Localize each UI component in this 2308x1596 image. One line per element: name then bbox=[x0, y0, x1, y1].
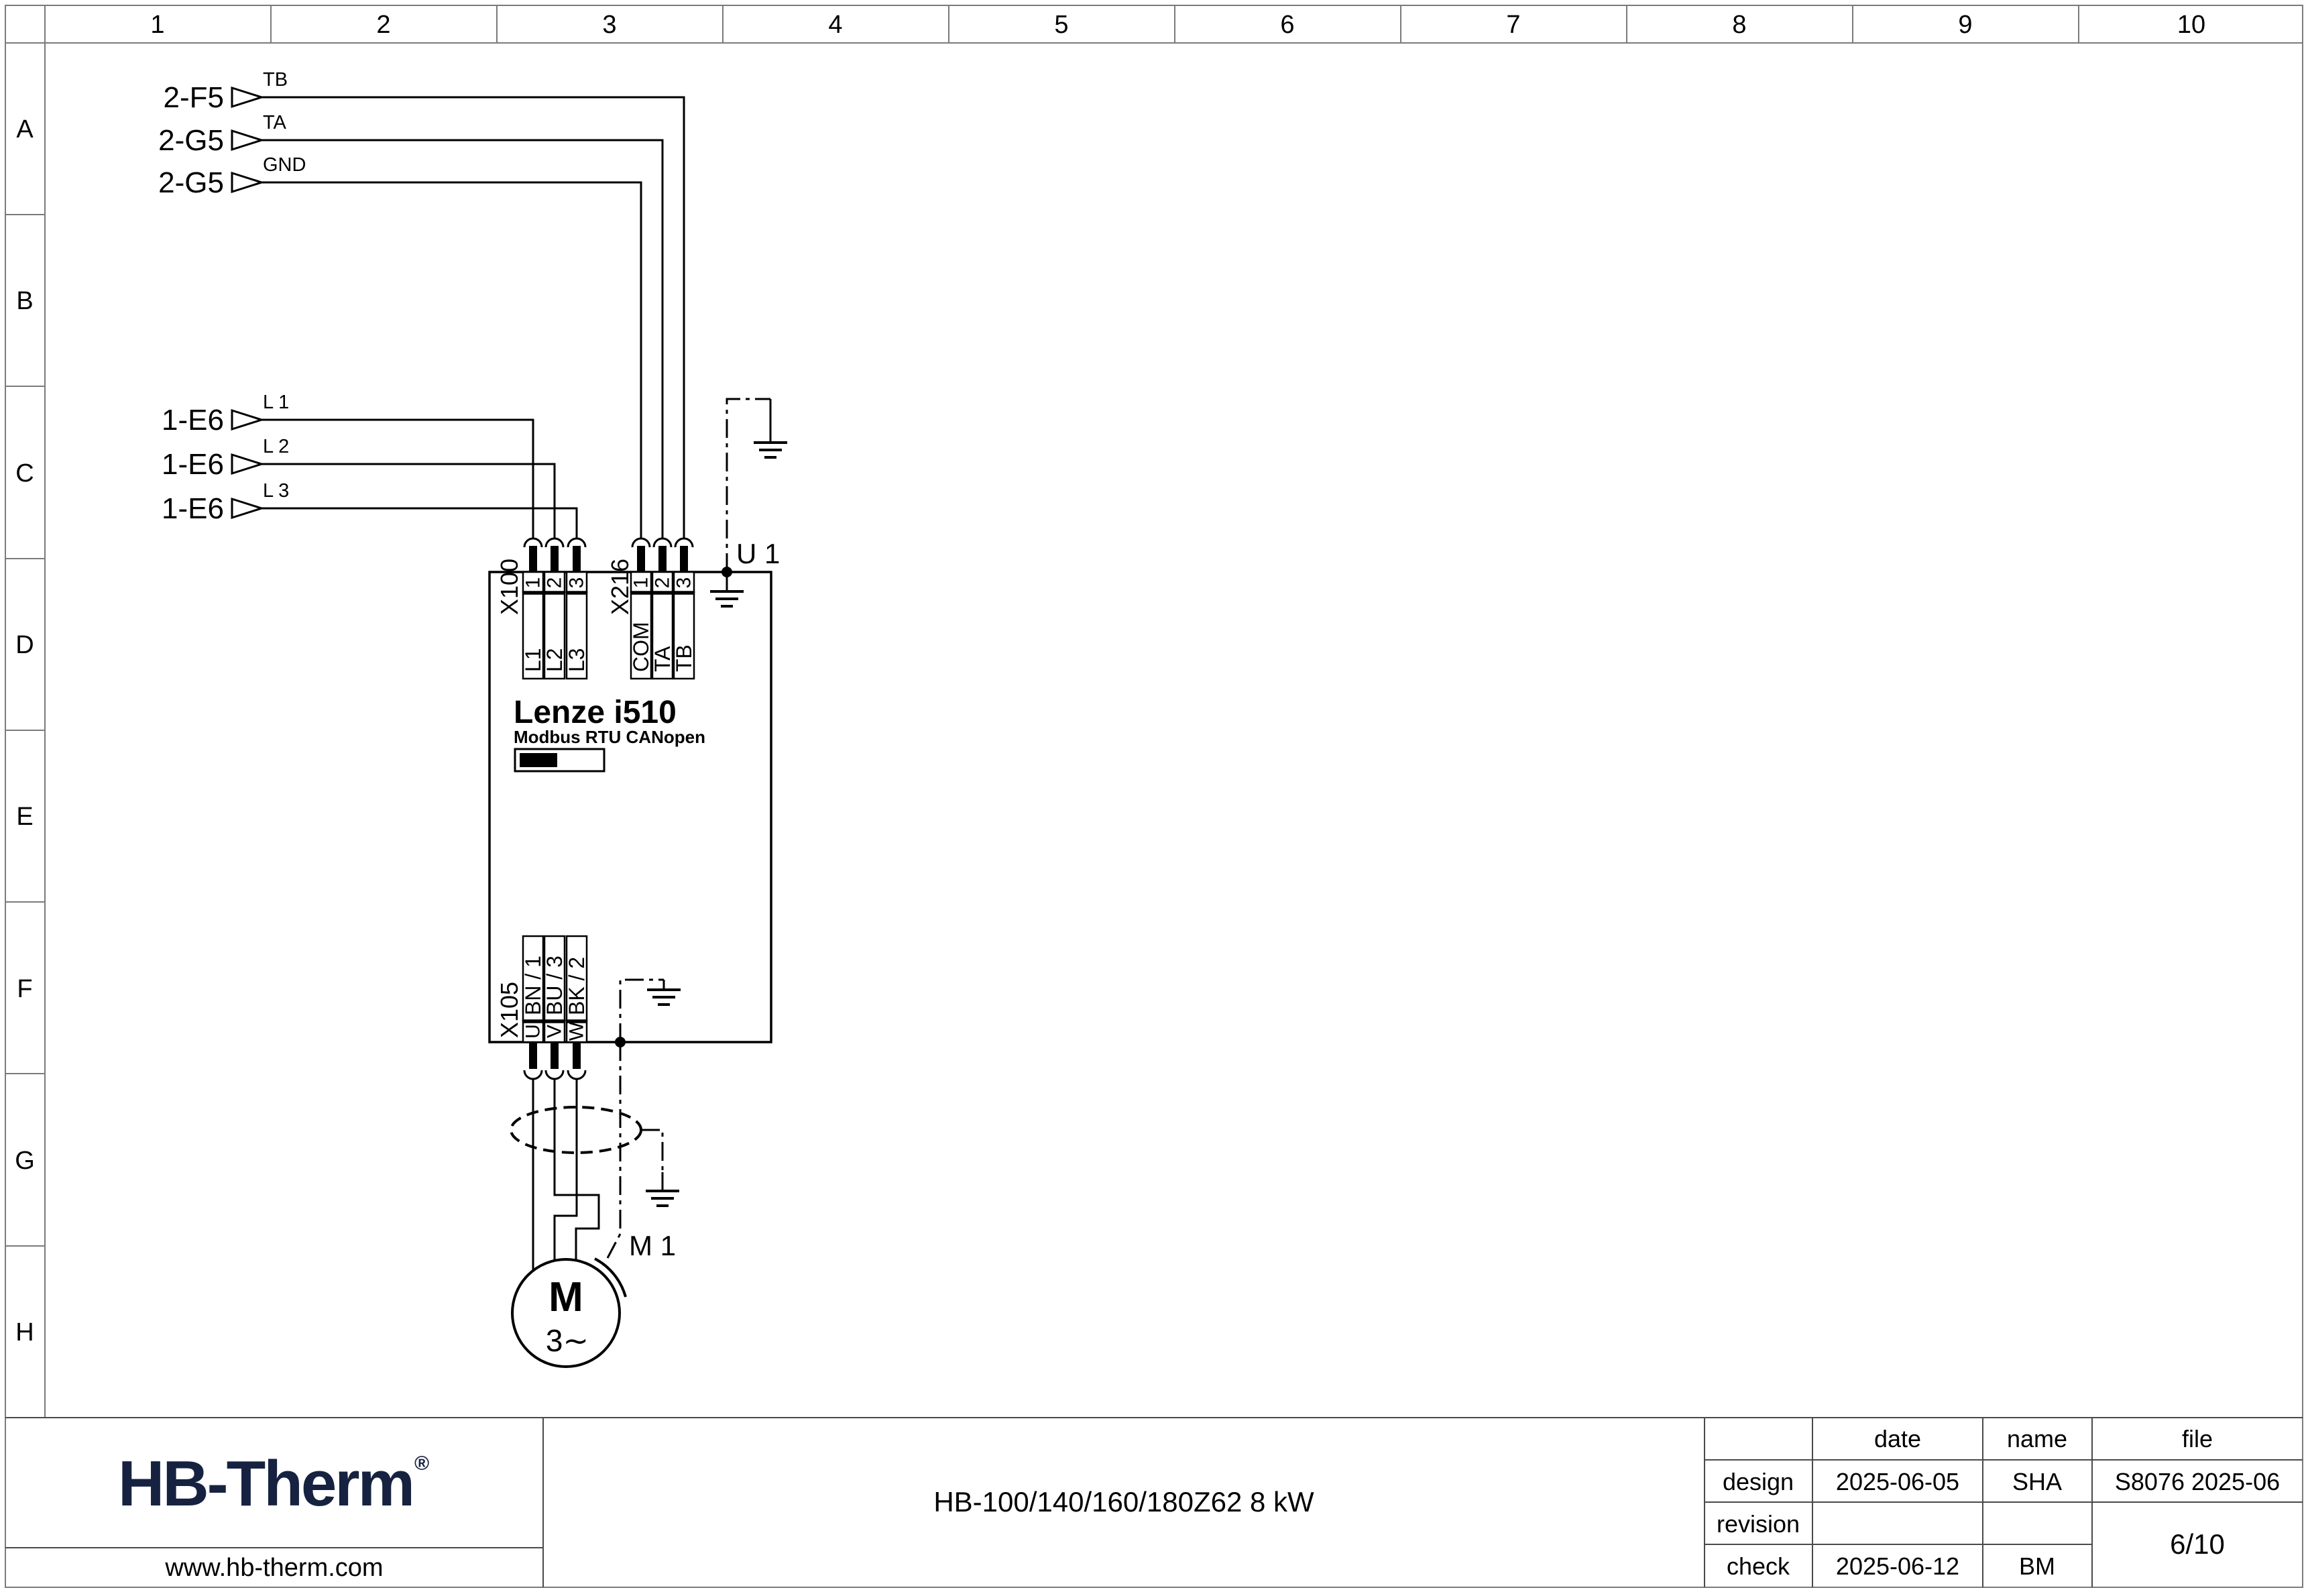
tb-header-date: date bbox=[1874, 1425, 1921, 1452]
pin-name: L3 bbox=[565, 648, 589, 672]
tb-design-date: 2025-06-05 bbox=[1836, 1468, 1959, 1495]
pin-number: 3 bbox=[566, 577, 588, 589]
row-label: A bbox=[16, 115, 34, 144]
signal-ref: 1-E6 bbox=[162, 404, 224, 437]
wire-label: L 1 bbox=[263, 392, 289, 413]
col-label: 10 bbox=[2177, 11, 2205, 39]
row-label: D bbox=[15, 631, 34, 659]
tb-file-value: S8076 2025-06 bbox=[2115, 1468, 2280, 1495]
signal-ref: 2-F5 bbox=[164, 81, 224, 114]
tb-header-name: name bbox=[2007, 1425, 2067, 1452]
col-label: 4 bbox=[828, 11, 842, 39]
pin-name: BU / 3 bbox=[542, 956, 567, 1015]
pin-number: 2 bbox=[544, 577, 566, 589]
company-logo: HB-Therm ® bbox=[118, 1448, 429, 1520]
wire-label: TB bbox=[263, 69, 288, 91]
comm-switch-icon bbox=[515, 749, 604, 771]
pin-name: L1 bbox=[521, 648, 545, 672]
pin-name: TB bbox=[672, 644, 696, 672]
col-label: 1 bbox=[150, 11, 164, 39]
pin-name: BN / 1 bbox=[521, 956, 545, 1015]
pin-name: L2 bbox=[542, 648, 567, 672]
motor-letter: M bbox=[549, 1274, 583, 1320]
tb-check-date: 2025-06-12 bbox=[1836, 1552, 1959, 1580]
motor-phases: 3∼ bbox=[546, 1323, 589, 1358]
col-label: 5 bbox=[1054, 11, 1068, 39]
pin-name: COM bbox=[629, 622, 653, 672]
pin-number: 3 bbox=[673, 577, 695, 589]
row-label: E bbox=[16, 803, 33, 831]
signal-ref: 1-E6 bbox=[162, 492, 224, 525]
tb-design-label: design bbox=[1723, 1468, 1794, 1495]
wire-label: TA bbox=[263, 112, 287, 133]
pin-name: BK / 2 bbox=[565, 957, 589, 1015]
signal-ref: 2-G5 bbox=[158, 166, 224, 199]
row-label: B bbox=[16, 287, 33, 315]
pin-number: V bbox=[544, 1025, 566, 1038]
tb-page-number: 6/10 bbox=[2170, 1528, 2225, 1560]
pin-number: 1 bbox=[522, 577, 544, 589]
row-label: C bbox=[15, 459, 34, 488]
document-title: HB-100/140/160/180Z62 8 kW bbox=[933, 1486, 1314, 1518]
signal-ref: 1-E6 bbox=[162, 448, 224, 481]
tb-revision-label: revision bbox=[1717, 1510, 1800, 1538]
tb-design-name: SHA bbox=[2012, 1468, 2062, 1495]
svg-text:HB-Therm: HB-Therm bbox=[118, 1448, 413, 1520]
wire-label: L 3 bbox=[263, 480, 289, 502]
row-label: G bbox=[15, 1147, 35, 1175]
col-label: 2 bbox=[376, 11, 390, 39]
col-label: 6 bbox=[1280, 11, 1294, 39]
col-label: 8 bbox=[1732, 11, 1746, 39]
motor-designation: M 1 bbox=[629, 1230, 676, 1261]
col-label: 3 bbox=[602, 11, 616, 39]
drive-comm: Modbus RTU CANopen bbox=[514, 727, 705, 747]
pin-number: W bbox=[566, 1021, 588, 1041]
terminal-label: X105 bbox=[496, 982, 523, 1038]
signal-ref: 2-G5 bbox=[158, 124, 224, 157]
pin-number: 1 bbox=[630, 577, 652, 589]
terminal-label: X100 bbox=[496, 559, 523, 615]
registered-mark-icon: ® bbox=[414, 1452, 429, 1475]
wire-label: GND bbox=[263, 154, 306, 176]
pin-name: TA bbox=[650, 646, 675, 672]
page-background bbox=[0, 0, 2308, 1593]
tb-check-name: BM bbox=[2019, 1552, 2055, 1580]
schematic-page: 1 2 3 4 5 6 7 8 9 10 A B C D E F G H 2-F… bbox=[0, 0, 2308, 1593]
pin-number: U bbox=[522, 1024, 544, 1039]
drive-model: Lenze i510 bbox=[514, 695, 677, 730]
drive-designation: U 1 bbox=[736, 538, 780, 569]
company-website: www.hb-therm.com bbox=[164, 1554, 383, 1582]
col-label: 9 bbox=[1958, 11, 1972, 39]
pin-number: 2 bbox=[652, 577, 674, 589]
tb-header-file: file bbox=[2182, 1425, 2213, 1452]
wire-label: L 2 bbox=[263, 436, 289, 457]
row-label: F bbox=[17, 975, 32, 1003]
row-label: H bbox=[15, 1318, 34, 1347]
tb-check-label: check bbox=[1727, 1552, 1790, 1580]
col-label: 7 bbox=[1506, 11, 1520, 39]
